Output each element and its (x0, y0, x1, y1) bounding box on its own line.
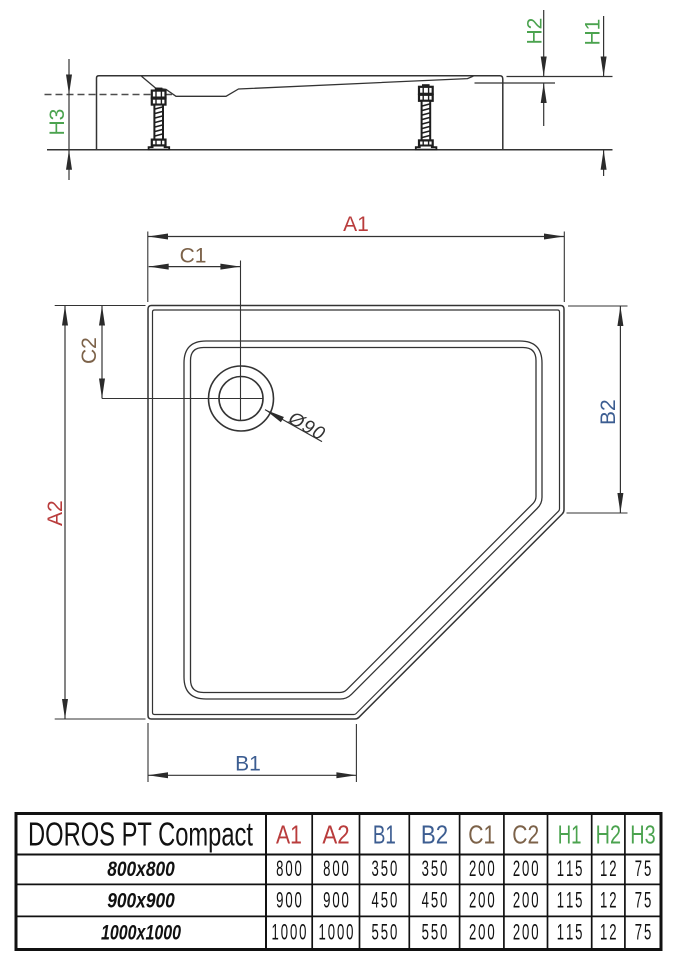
svg-text:0: 0 (440, 920, 447, 945)
svg-text:H2: H2 (524, 18, 547, 45)
svg-text:H1: H1 (582, 19, 605, 46)
svg-text:2: 2 (469, 920, 476, 945)
svg-text:Ø90: Ø90 (284, 408, 329, 446)
svg-text:A1: A1 (276, 819, 302, 849)
svg-text:C2: C2 (512, 819, 539, 849)
svg-text:0: 0 (285, 888, 292, 913)
svg-text:H2: H2 (596, 819, 621, 849)
svg-text:0: 0 (522, 856, 529, 881)
svg-text:900x900: 900x900 (107, 890, 175, 913)
svg-text:0: 0 (295, 888, 302, 913)
svg-text:5: 5 (431, 856, 438, 881)
svg-text:9: 9 (323, 888, 330, 913)
svg-text:0: 0 (328, 920, 335, 945)
svg-text:4: 4 (422, 888, 429, 913)
svg-text:0: 0 (440, 888, 447, 913)
svg-text:C2: C2 (78, 337, 101, 364)
svg-text:0: 0 (478, 856, 485, 881)
svg-text:5: 5 (372, 920, 379, 945)
svg-text:0: 0 (295, 856, 302, 881)
svg-text:0: 0 (522, 888, 529, 913)
svg-text:5: 5 (431, 888, 438, 913)
svg-text:2: 2 (609, 856, 616, 881)
svg-text:0: 0 (342, 888, 349, 913)
svg-text:H1: H1 (558, 819, 582, 849)
svg-text:A1: A1 (343, 213, 369, 236)
svg-text:0: 0 (478, 888, 485, 913)
svg-text:H3: H3 (46, 109, 69, 136)
svg-text:5: 5 (431, 920, 438, 945)
svg-text:H3: H3 (630, 819, 655, 849)
svg-text:5: 5 (644, 856, 651, 881)
svg-text:5: 5 (381, 920, 388, 945)
svg-text:0: 0 (440, 856, 447, 881)
svg-text:0: 0 (285, 856, 292, 881)
svg-text:0: 0 (487, 920, 494, 945)
svg-text:1000x1000: 1000x1000 (101, 922, 181, 945)
svg-text:7: 7 (635, 888, 642, 913)
svg-text:0: 0 (281, 920, 288, 945)
svg-text:7: 7 (635, 920, 642, 945)
svg-text:3: 3 (422, 856, 429, 881)
svg-text:0: 0 (478, 920, 485, 945)
svg-text:C1: C1 (468, 819, 495, 849)
svg-text:0: 0 (531, 888, 538, 913)
svg-text:0: 0 (299, 920, 306, 945)
svg-text:1: 1 (566, 920, 573, 945)
svg-text:1: 1 (600, 856, 607, 881)
svg-text:0: 0 (531, 856, 538, 881)
svg-text:8: 8 (276, 856, 283, 881)
svg-text:8: 8 (323, 856, 330, 881)
svg-text:7: 7 (635, 856, 642, 881)
svg-text:1: 1 (272, 920, 279, 945)
svg-text:1: 1 (600, 920, 607, 945)
svg-text:0: 0 (531, 920, 538, 945)
svg-text:5: 5 (575, 888, 582, 913)
svg-text:A2: A2 (44, 500, 67, 526)
svg-text:0: 0 (487, 888, 494, 913)
svg-text:0: 0 (487, 856, 494, 881)
svg-text:1: 1 (557, 888, 564, 913)
svg-text:0: 0 (522, 920, 529, 945)
svg-text:1: 1 (319, 920, 326, 945)
svg-text:9: 9 (276, 888, 283, 913)
svg-text:2: 2 (469, 856, 476, 881)
svg-text:0: 0 (390, 888, 397, 913)
svg-text:B2: B2 (597, 399, 620, 425)
svg-text:800x800: 800x800 (107, 858, 175, 881)
svg-text:0: 0 (346, 920, 353, 945)
svg-text:5: 5 (575, 920, 582, 945)
svg-text:5: 5 (575, 856, 582, 881)
svg-text:1: 1 (557, 920, 564, 945)
svg-text:0: 0 (342, 856, 349, 881)
svg-text:0: 0 (332, 856, 339, 881)
svg-text:B1: B1 (373, 819, 396, 849)
svg-text:B2: B2 (421, 819, 448, 849)
svg-text:A2: A2 (322, 819, 349, 849)
svg-text:2: 2 (513, 856, 520, 881)
svg-text:B1: B1 (235, 753, 261, 776)
svg-text:2: 2 (609, 888, 616, 913)
svg-text:5: 5 (644, 920, 651, 945)
svg-text:5: 5 (381, 888, 388, 913)
svg-text:1: 1 (600, 888, 607, 913)
svg-text:0: 0 (290, 920, 297, 945)
svg-text:5: 5 (644, 888, 651, 913)
svg-text:3: 3 (372, 856, 379, 881)
svg-text:0: 0 (390, 920, 397, 945)
svg-text:2: 2 (513, 888, 520, 913)
svg-text:2: 2 (469, 888, 476, 913)
svg-text:1: 1 (566, 888, 573, 913)
svg-text:2: 2 (609, 920, 616, 945)
svg-text:0: 0 (337, 920, 344, 945)
svg-text:5: 5 (381, 856, 388, 881)
svg-text:DOROS PT Compact: DOROS PT Compact (28, 816, 253, 853)
svg-text:1: 1 (557, 856, 564, 881)
svg-text:5: 5 (422, 920, 429, 945)
svg-text:1: 1 (566, 856, 573, 881)
svg-text:C1: C1 (180, 245, 207, 268)
svg-text:0: 0 (390, 856, 397, 881)
svg-text:2: 2 (513, 920, 520, 945)
svg-text:4: 4 (372, 888, 379, 913)
svg-text:0: 0 (332, 888, 339, 913)
